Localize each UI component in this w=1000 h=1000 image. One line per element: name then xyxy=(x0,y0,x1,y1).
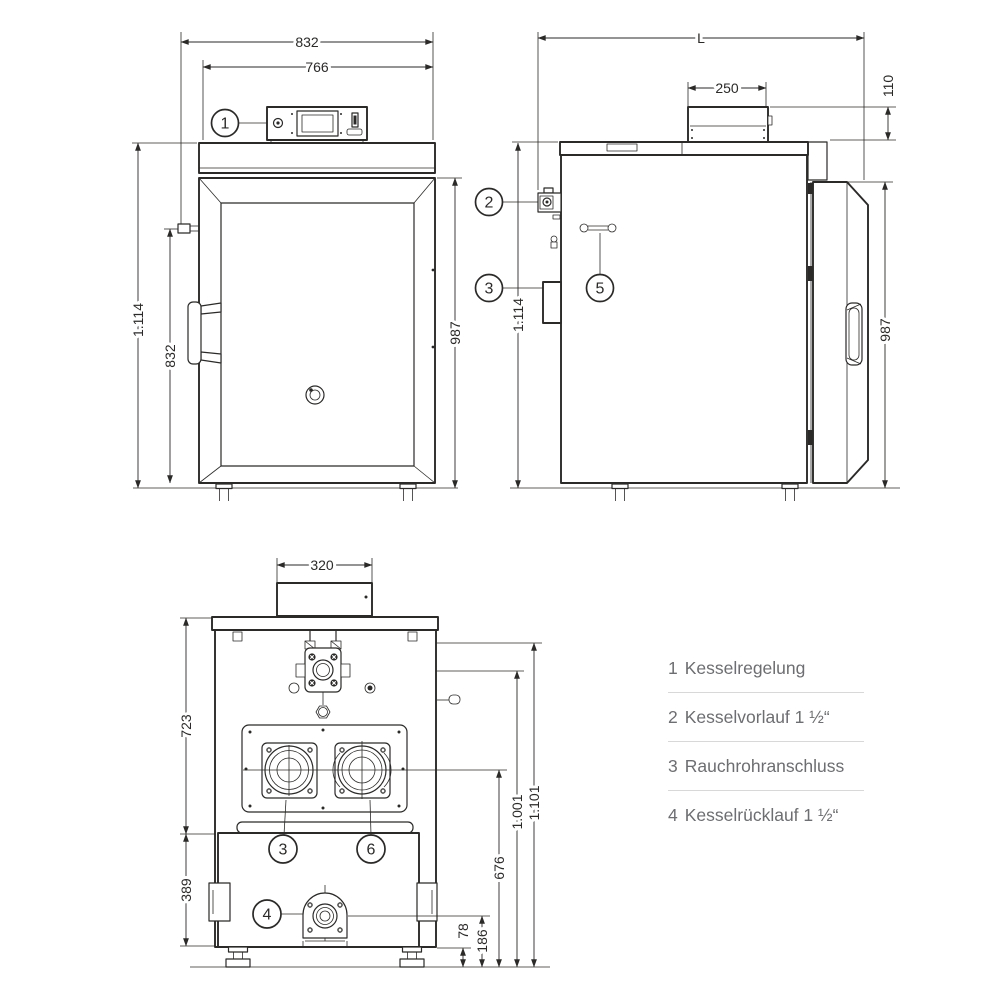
svg-text:4: 4 xyxy=(263,907,272,924)
legend-item-3: 3 Rauchrohranschluss xyxy=(668,742,864,791)
svg-text:987: 987 xyxy=(447,321,463,345)
side-foot-left xyxy=(612,484,628,501)
side-door-handle xyxy=(846,303,862,365)
legend-label: Rauchrohranschluss xyxy=(685,756,845,777)
svg-text:723: 723 xyxy=(178,714,194,738)
svg-text:832: 832 xyxy=(162,344,178,368)
front-face xyxy=(199,178,435,483)
legend-label: Kesselvorlauf 1 ½“ xyxy=(685,707,830,728)
side-dim-panel-width: 250 xyxy=(688,80,766,107)
svg-text:320: 320 xyxy=(310,557,334,573)
rear-view: 320 723 389 78 186 676 1.00 xyxy=(178,557,550,967)
panel-button xyxy=(347,129,362,135)
svg-text:5: 5 xyxy=(596,281,605,298)
callout-3-side: 3 xyxy=(476,275,544,302)
flow-fitting xyxy=(538,188,561,212)
svg-text:1.001: 1.001 xyxy=(509,794,525,829)
svg-text:1.114: 1.114 xyxy=(130,303,146,337)
svg-text:676: 676 xyxy=(491,856,507,880)
rear-foot-right xyxy=(400,947,424,967)
svg-text:78: 78 xyxy=(455,923,471,939)
svg-text:832: 832 xyxy=(295,34,319,50)
side-stub xyxy=(553,215,560,219)
boiler-technical-drawing: 832 766 1.114 832 987 xyxy=(0,0,1000,1000)
legend-label: Kesselregelung xyxy=(685,658,806,679)
side-body xyxy=(561,155,807,483)
svg-text:6: 6 xyxy=(367,842,376,859)
side-control-box xyxy=(688,107,772,142)
rear-bolt-right xyxy=(365,683,375,693)
side-dim-panel-height: 110 xyxy=(770,75,896,140)
rear-dim-return-height: 186 xyxy=(474,916,490,967)
front-top-cap xyxy=(199,143,435,173)
callout-2: 2 xyxy=(476,189,539,216)
front-foot-left xyxy=(216,484,232,501)
legend-item-4: 4 Kesselrücklauf 1 ½“ xyxy=(668,791,864,839)
svg-text:389: 389 xyxy=(178,878,194,902)
front-door-knob xyxy=(306,386,324,404)
svg-text:766: 766 xyxy=(305,59,329,75)
jacket-band xyxy=(237,822,413,833)
flue-port xyxy=(262,743,317,798)
front-view: 832 766 1.114 832 987 xyxy=(130,32,463,501)
front-drain-fitting xyxy=(178,224,199,233)
legend-number: 2 xyxy=(668,707,678,728)
callout-1: 1 xyxy=(212,110,268,137)
rear-dim-flue-width: 320 xyxy=(277,557,372,583)
svg-text:3: 3 xyxy=(485,281,494,298)
legend-number: 4 xyxy=(668,805,678,826)
legend: 1 Kesselregelung 2 Kesselvorlauf 1 ½“ 3 … xyxy=(668,644,864,839)
rear-hole-left xyxy=(289,683,299,693)
side-view: L 250 110 1.114 987 xyxy=(476,30,901,501)
legend-item-1: 1 Kesselregelung xyxy=(668,644,864,693)
svg-text:L: L xyxy=(697,30,705,46)
control-panel xyxy=(267,107,367,143)
front-dim-height-total: 1.114 xyxy=(130,143,197,488)
legend-item-2: 2 Kesselvorlauf 1 ½“ xyxy=(668,693,864,742)
side-door xyxy=(813,182,868,483)
side-lever-rear xyxy=(437,695,460,704)
svg-text:1.114: 1.114 xyxy=(510,298,526,332)
front-foot-right xyxy=(400,484,416,501)
svg-text:186: 186 xyxy=(474,929,490,953)
legend-number: 3 xyxy=(668,756,678,777)
rear-dim-port-height: 676 xyxy=(491,770,507,967)
side-foot-right xyxy=(782,484,798,501)
rear-dim-upper-height: 723 xyxy=(178,618,219,834)
rear-dim-foot-height: 78 xyxy=(437,923,471,967)
rear-foot-left xyxy=(226,947,250,967)
rear-top-band xyxy=(212,617,438,630)
svg-text:1: 1 xyxy=(221,116,230,133)
svg-text:250: 250 xyxy=(715,80,739,96)
svg-text:1.101: 1.101 xyxy=(526,785,542,820)
front-dim-height-body: 987 xyxy=(437,178,463,488)
legend-number: 1 xyxy=(668,658,678,679)
svg-text:987: 987 xyxy=(877,318,893,342)
thermo-fitting xyxy=(551,236,557,248)
svg-text:110: 110 xyxy=(880,75,896,98)
front-dim-height-door: 832 xyxy=(162,229,178,483)
svg-text:3: 3 xyxy=(279,842,288,859)
legend-label: Kesselrücklauf 1 ½“ xyxy=(685,805,839,826)
flue-outlet-side xyxy=(543,282,561,323)
svg-text:2: 2 xyxy=(485,195,494,212)
